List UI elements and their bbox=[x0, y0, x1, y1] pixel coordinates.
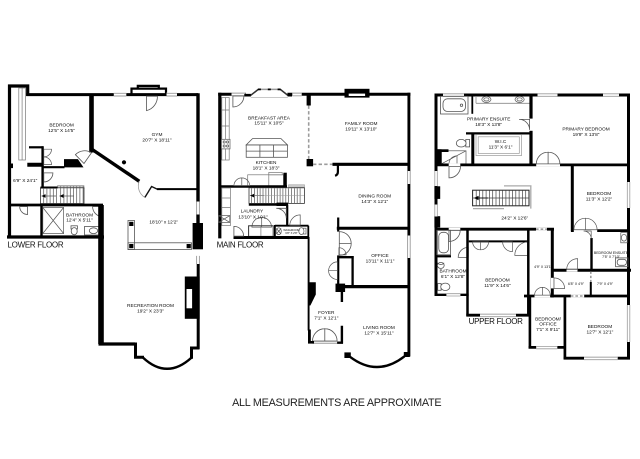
svg-text:19'2" X 23'3": 19'2" X 23'3" bbox=[137, 309, 164, 315]
svg-text:11'9" X 14'6": 11'9" X 14'6" bbox=[484, 283, 511, 289]
svg-text:7'1" X 12'1": 7'1" X 12'1" bbox=[314, 315, 339, 321]
svg-text:6'8" X 2'8": 6'8" X 2'8" bbox=[285, 231, 297, 235]
svg-text:18'1" X 18'3": 18'1" X 18'3" bbox=[253, 166, 280, 172]
svg-text:19'11" X 13'10": 19'11" X 13'10" bbox=[345, 127, 377, 133]
svg-text:11'3" X 6'1": 11'3" X 6'1" bbox=[489, 144, 513, 150]
svg-text:19'9" X 13'8": 19'9" X 13'8" bbox=[573, 132, 600, 138]
svg-text:6'8" X 4'9": 6'8" X 4'9" bbox=[568, 282, 585, 286]
svg-text:7'1" X 9'11": 7'1" X 9'11" bbox=[536, 327, 560, 333]
svg-text:OFFICE: OFFICE bbox=[371, 253, 388, 259]
svg-text:LIVING ROOM: LIVING ROOM bbox=[363, 325, 395, 331]
svg-text:BEDROOM/: BEDROOM/ bbox=[535, 316, 562, 322]
svg-text:MAIN FLOOR: MAIN FLOOR bbox=[217, 241, 264, 250]
svg-text:13'11" X 11'1": 13'11" X 11'1" bbox=[366, 259, 395, 265]
svg-text:BATHROOM: BATHROOM bbox=[439, 269, 466, 275]
svg-text:GYM: GYM bbox=[152, 132, 163, 138]
svg-text:BEDROOM: BEDROOM bbox=[588, 324, 613, 330]
svg-text:PRIMARY BEDROOM: PRIMARY BEDROOM bbox=[562, 127, 609, 133]
svg-text:18'3" X 13'8": 18'3" X 13'8" bbox=[475, 122, 502, 128]
svg-text:11'3" X 12'2": 11'3" X 12'2" bbox=[586, 196, 613, 202]
svg-text:OFFICE: OFFICE bbox=[539, 322, 556, 328]
svg-text:FOYER: FOYER bbox=[318, 310, 335, 316]
svg-text:BATHROOM: BATHROOM bbox=[66, 212, 93, 218]
svg-text:BEDROOM: BEDROOM bbox=[49, 123, 74, 129]
svg-text:W.I.C: W.I.C bbox=[495, 139, 507, 145]
svg-text:12'7" X 12'1": 12'7" X 12'1" bbox=[586, 330, 613, 336]
svg-text:6'1" X 12'8": 6'1" X 12'8" bbox=[441, 274, 466, 280]
svg-text:DINING ROOM: DINING ROOM bbox=[358, 194, 391, 200]
svg-text:BEDROOM: BEDROOM bbox=[485, 277, 510, 283]
svg-text:ALL MEASUREMENTS ARE APPROXIMA: ALL MEASUREMENTS ARE APPROXIMATE bbox=[232, 397, 441, 409]
svg-text:13'10" X 10'1": 13'10" X 10'1" bbox=[238, 214, 268, 220]
svg-text:LOWER FLOOR: LOWER FLOOR bbox=[8, 241, 64, 250]
svg-text:KITCHEN: KITCHEN bbox=[256, 160, 277, 166]
svg-text:RECREATION ROOM: RECREATION ROOM bbox=[127, 303, 174, 309]
svg-text:14'3" X 12'1": 14'3" X 12'1" bbox=[361, 199, 388, 205]
svg-text:BREAKFAST AREA: BREAKFAST AREA bbox=[248, 115, 291, 121]
svg-text:12'4" X 5'11": 12'4" X 5'11" bbox=[66, 218, 93, 224]
svg-text:15'11" X 10'5": 15'11" X 10'5" bbox=[254, 121, 283, 127]
svg-text:12'5" X 14'5": 12'5" X 14'5" bbox=[48, 128, 75, 134]
svg-text:20'7" X 18'11": 20'7" X 18'11" bbox=[142, 138, 171, 144]
svg-text:BEDROOM: BEDROOM bbox=[587, 191, 612, 197]
svg-text:4'9" X 13'1": 4'9" X 13'1" bbox=[534, 265, 553, 269]
svg-text:UPPER FLOOR: UPPER FLOOR bbox=[469, 317, 524, 326]
svg-text:12'7" X 15'11": 12'7" X 15'11" bbox=[364, 330, 393, 336]
svg-text:FAMILY ROOM: FAMILY ROOM bbox=[345, 121, 378, 127]
svg-text:LAUNDRY: LAUNDRY bbox=[241, 209, 264, 215]
svg-text:6'9" X 24'1": 6'9" X 24'1" bbox=[13, 178, 38, 184]
svg-text:24'2" X 12'6": 24'2" X 12'6" bbox=[501, 216, 528, 222]
svg-text:PRIMARY ENSUITE: PRIMARY ENSUITE bbox=[467, 116, 510, 122]
svg-text:7'9" X 4'9": 7'9" X 4'9" bbox=[597, 282, 614, 286]
svg-text:18'10" x 12'2": 18'10" x 12'2" bbox=[149, 220, 178, 226]
svg-text:7'5" X 7'10": 7'5" X 7'10" bbox=[602, 255, 621, 259]
